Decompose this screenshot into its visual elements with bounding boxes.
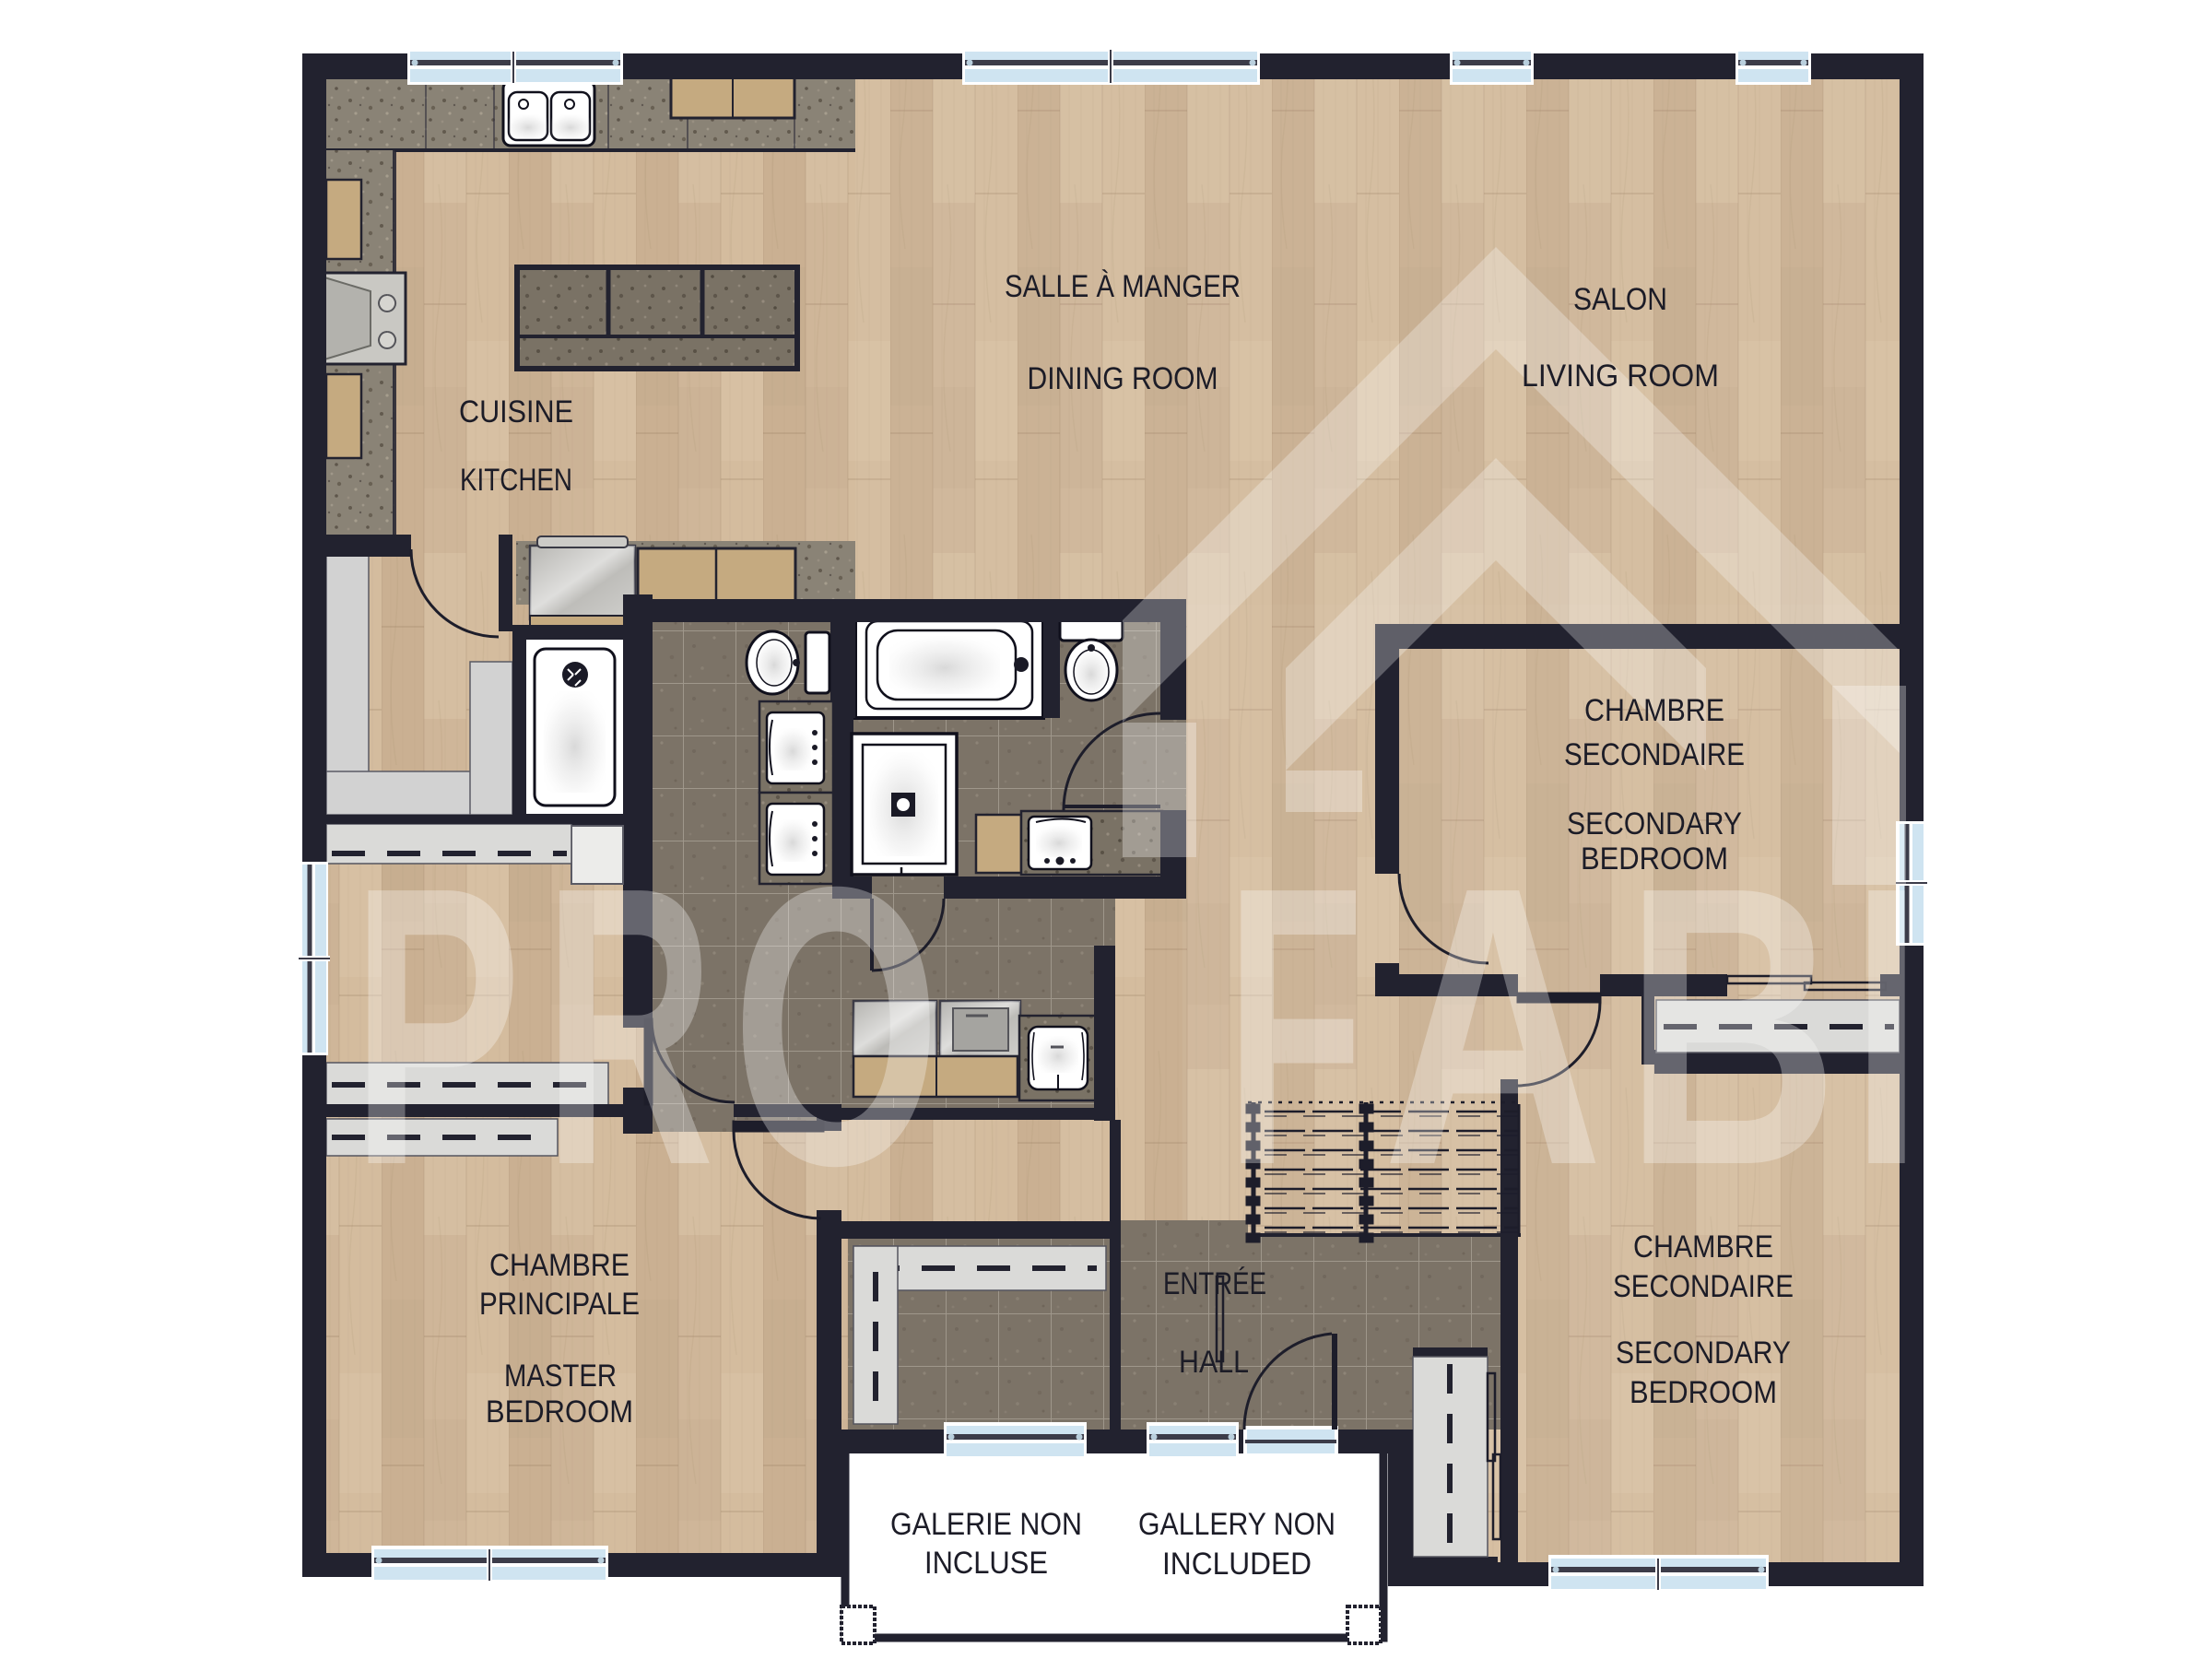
- svg-text:BEDROOM: BEDROOM: [1581, 841, 1728, 877]
- svg-text:MASTER: MASTER: [504, 1359, 617, 1394]
- svg-text:HALL: HALL: [1179, 1345, 1249, 1380]
- svg-text:KITCHEN: KITCHEN: [460, 463, 572, 498]
- svg-text:F: F: [1226, 806, 1364, 1248]
- svg-text:SECONDARY: SECONDARY: [1567, 806, 1742, 841]
- svg-text:PRINCIPALE: PRINCIPALE: [479, 1287, 640, 1322]
- svg-text:BEDROOM: BEDROOM: [1630, 1375, 1777, 1410]
- svg-text:CHAMBRE: CHAMBRE: [1584, 693, 1724, 728]
- svg-text:ENTRÉE: ENTRÉE: [1163, 1266, 1266, 1301]
- svg-text:INCLUSE: INCLUSE: [924, 1546, 1048, 1581]
- svg-text:I: I: [1852, 806, 1922, 1248]
- svg-text:O: O: [732, 806, 941, 1248]
- svg-text:A: A: [1382, 806, 1604, 1248]
- svg-text:CUISINE: CUISINE: [459, 394, 573, 429]
- svg-text:CHAMBRE: CHAMBRE: [489, 1248, 629, 1283]
- svg-text:BEDROOM: BEDROOM: [486, 1394, 633, 1430]
- svg-text:SECONDAIRE: SECONDAIRE: [1613, 1269, 1794, 1304]
- svg-text:SECONDAIRE: SECONDAIRE: [1564, 737, 1745, 772]
- svg-text:DINING ROOM: DINING ROOM: [1028, 361, 1218, 396]
- svg-text:R: R: [544, 806, 714, 1248]
- svg-text:INCLUDED: INCLUDED: [1162, 1547, 1312, 1582]
- svg-text:SECONDARY: SECONDARY: [1616, 1335, 1791, 1371]
- svg-text:SALON: SALON: [1573, 282, 1667, 317]
- svg-text:GALERIE NON: GALERIE NON: [890, 1507, 1082, 1542]
- svg-text:LIVING ROOM: LIVING ROOM: [1522, 359, 1719, 394]
- svg-text:SALLE À MANGER: SALLE À MANGER: [1005, 269, 1241, 304]
- svg-text:P: P: [351, 806, 522, 1248]
- svg-text:CHAMBRE: CHAMBRE: [1633, 1230, 1773, 1265]
- svg-text:GALLERY NON: GALLERY NON: [1138, 1507, 1335, 1542]
